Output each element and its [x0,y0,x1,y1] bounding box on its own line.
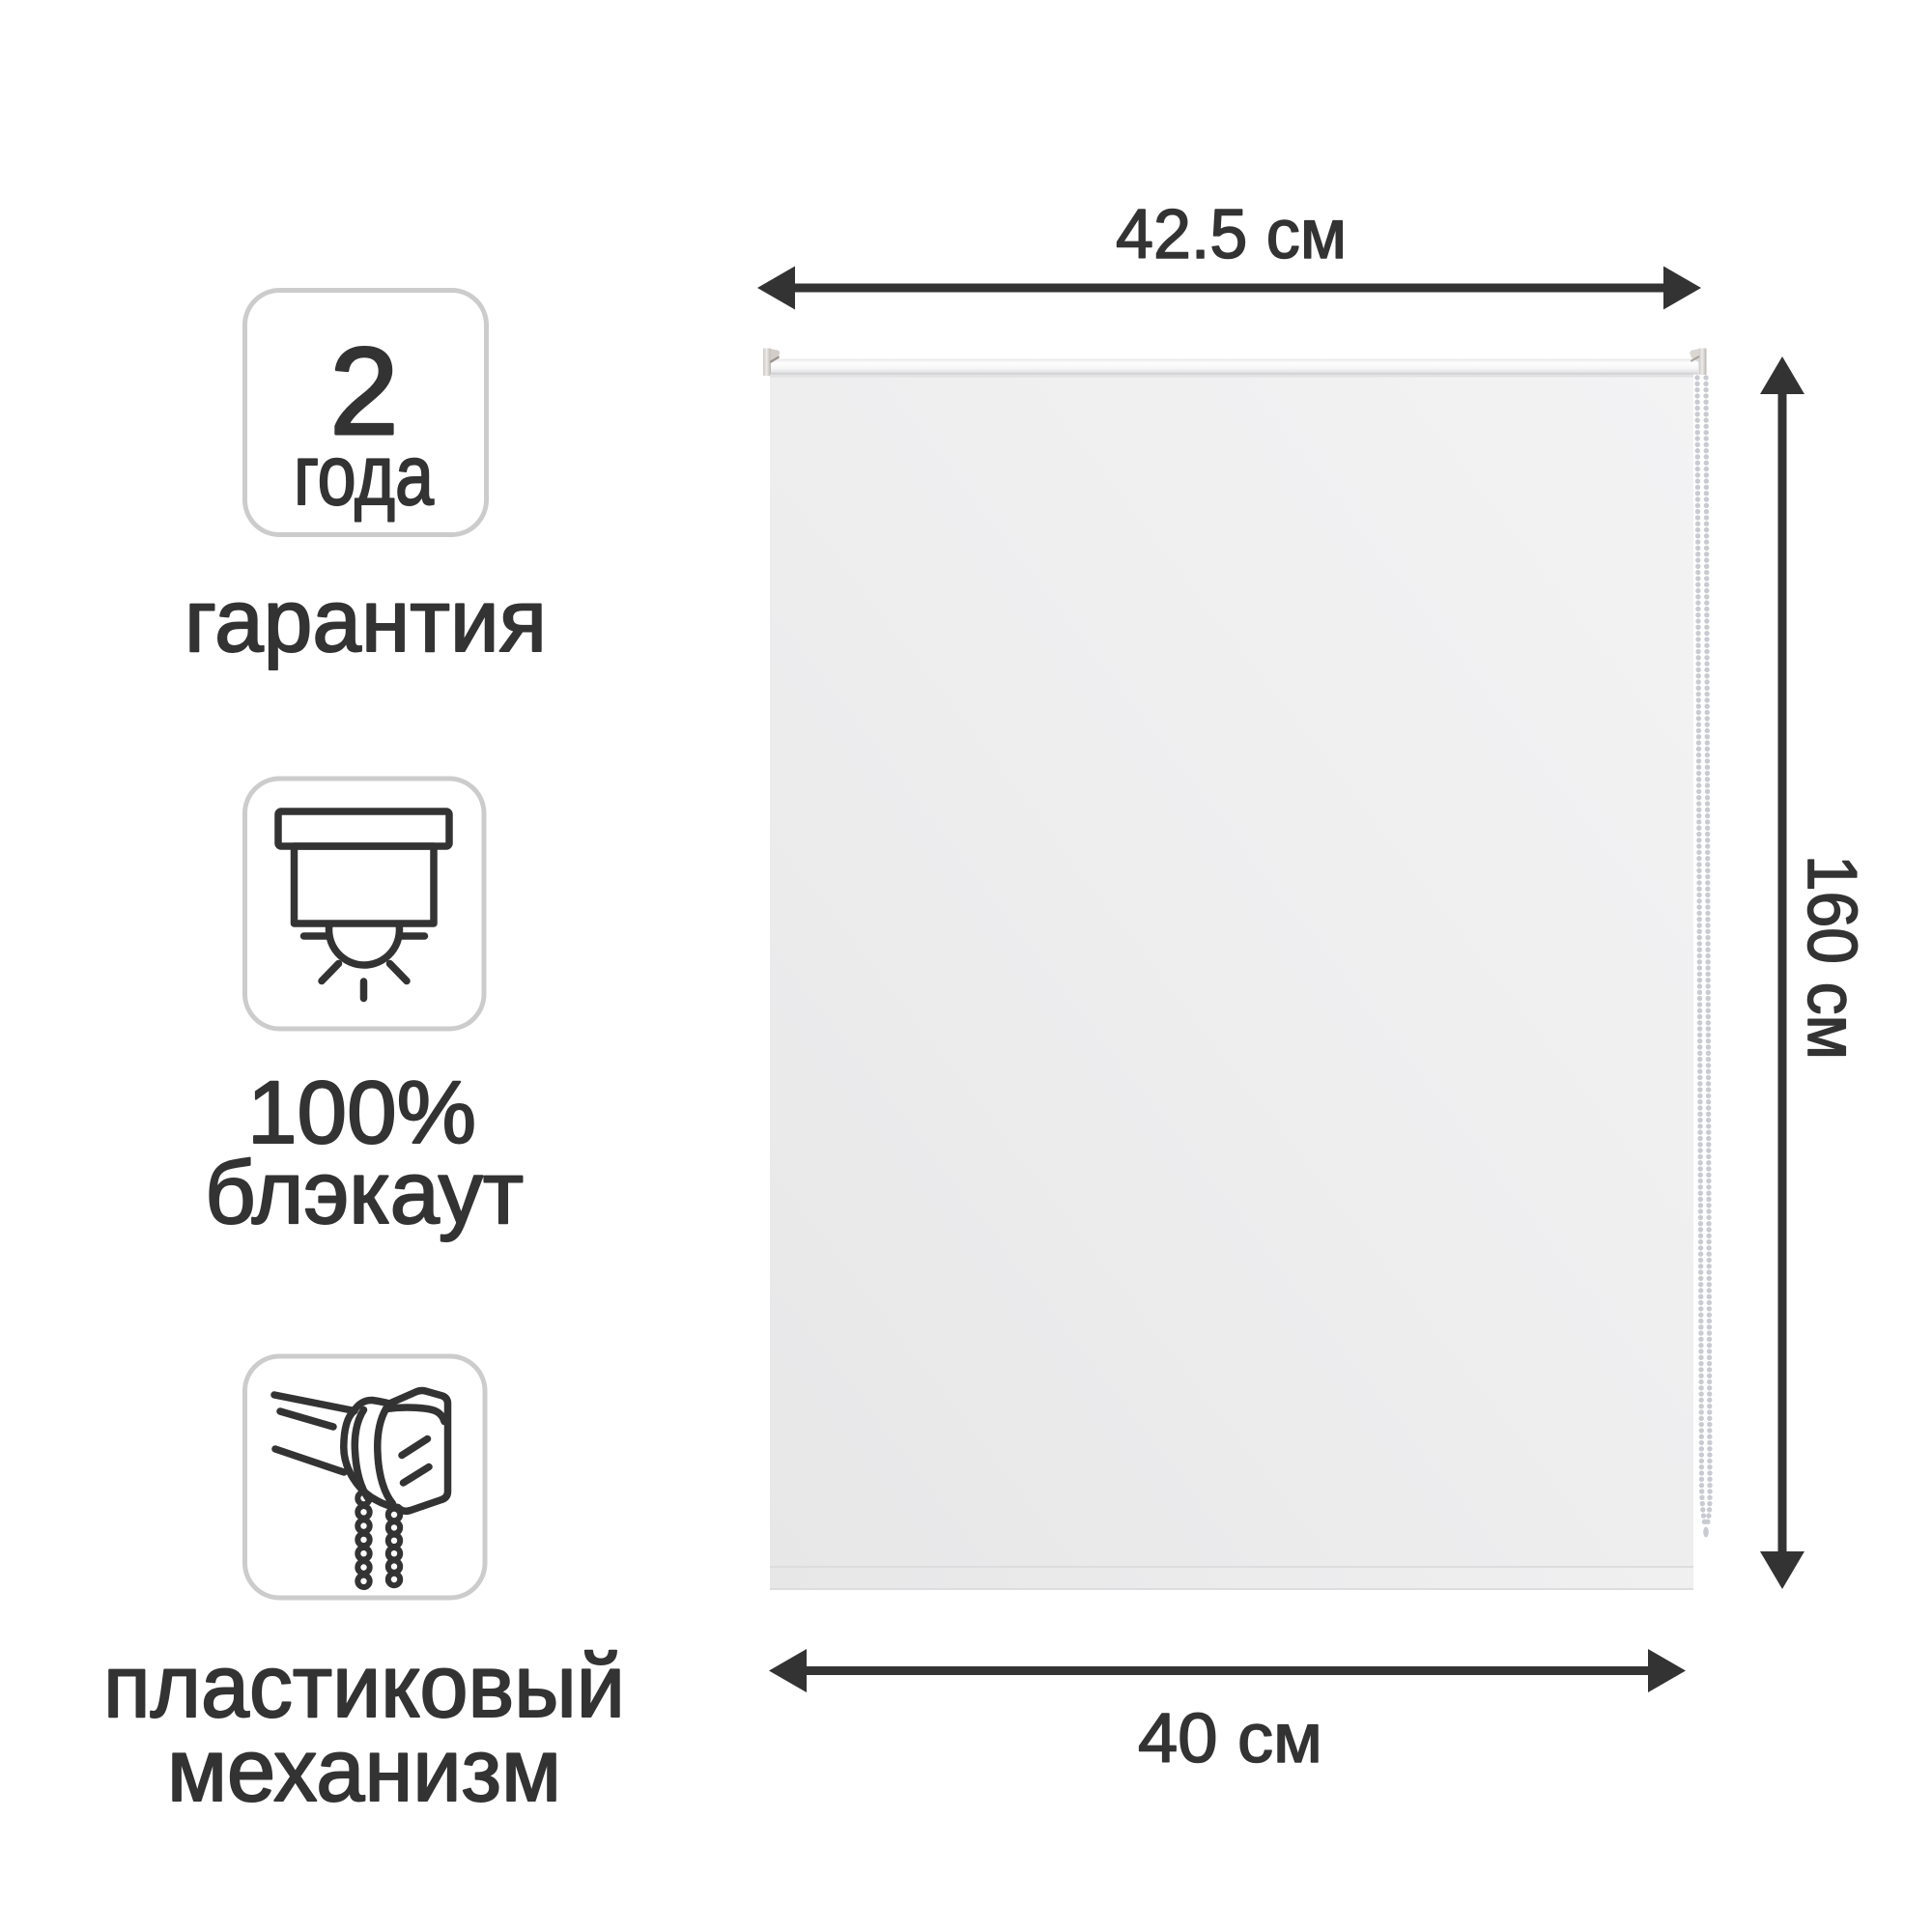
svg-text:года: года [294,427,434,523]
svg-text:гарантия: гарантия [185,572,547,670]
svg-text:160 см: 160 см [1793,855,1870,1060]
svg-text:42.5 см: 42.5 см [1116,196,1347,273]
svg-text:40 см: 40 см [1138,1700,1322,1777]
svg-text:блэкаут: блэкаут [205,1144,524,1242]
svg-text:механизм: механизм [167,1721,561,1820]
